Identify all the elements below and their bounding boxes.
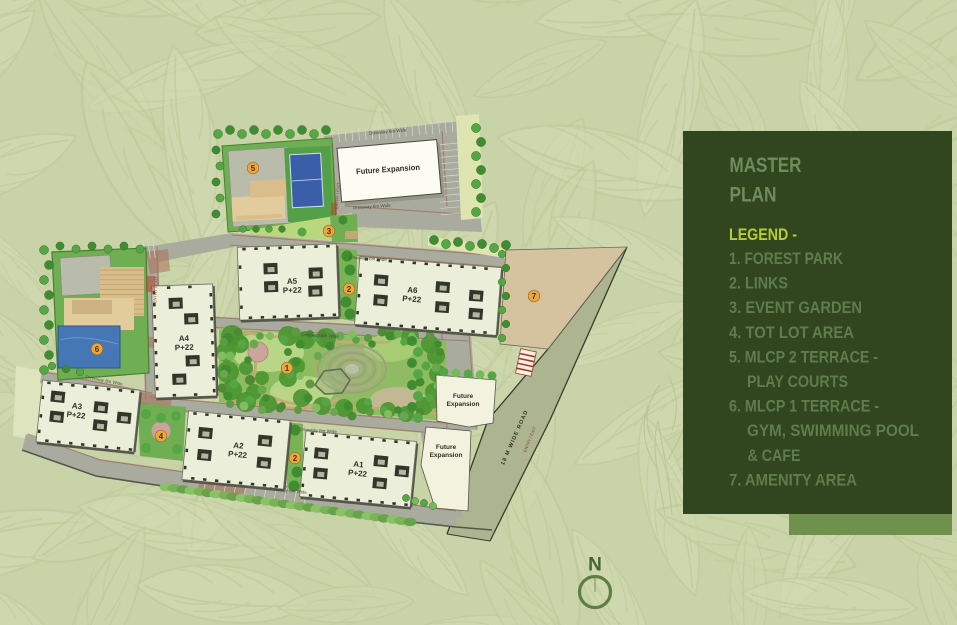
svg-text:7. AMENITY AREA: 7. AMENITY AREA xyxy=(729,471,857,489)
svg-text:MASTER: MASTER xyxy=(730,154,802,177)
svg-text:1. FOREST PARK: 1. FOREST PARK xyxy=(729,250,843,268)
svg-text:P+22: P+22 xyxy=(402,294,422,304)
svg-text:Future: Future xyxy=(453,393,474,400)
svg-text:2. LINKS: 2. LINKS xyxy=(729,275,788,293)
svg-text:4: 4 xyxy=(159,432,164,441)
svg-text:PLAY COURTS: PLAY COURTS xyxy=(747,373,848,391)
svg-text:Future: Future xyxy=(436,444,457,451)
svg-text:Expansion: Expansion xyxy=(447,401,480,408)
svg-text:LEGEND -: LEGEND - xyxy=(729,226,797,244)
svg-text:2: 2 xyxy=(293,454,298,463)
svg-text:5: 5 xyxy=(251,164,256,173)
svg-text:7: 7 xyxy=(532,292,537,301)
svg-text:4. TOT LOT AREA: 4. TOT LOT AREA xyxy=(729,324,854,342)
svg-text:3. EVENT GARDEN: 3. EVENT GARDEN xyxy=(729,299,862,317)
svg-text:& CAFE: & CAFE xyxy=(748,447,801,465)
svg-text:6: 6 xyxy=(95,345,100,354)
svg-text:2: 2 xyxy=(347,285,352,294)
svg-text:P+22: P+22 xyxy=(175,343,195,353)
svg-text:3: 3 xyxy=(327,227,332,236)
svg-text:1: 1 xyxy=(285,364,290,373)
svg-text:P+22: P+22 xyxy=(283,286,303,296)
svg-text:A4: A4 xyxy=(179,334,190,343)
svg-text:P+22: P+22 xyxy=(228,449,248,460)
svg-text:Expansion: Expansion xyxy=(430,452,463,459)
svg-text:A5: A5 xyxy=(287,277,298,286)
svg-text:PLAN: PLAN xyxy=(730,183,777,206)
svg-text:GYM, SWIMMING POOL: GYM, SWIMMING POOL xyxy=(747,422,919,440)
svg-text:N: N xyxy=(588,555,602,576)
svg-text:5. MLCP 2 TERRACE -: 5. MLCP 2 TERRACE - xyxy=(729,348,878,366)
svg-text:P+22: P+22 xyxy=(348,468,368,479)
svg-text:6. MLCP 1 TERRACE -: 6. MLCP 1 TERRACE - xyxy=(729,398,879,416)
